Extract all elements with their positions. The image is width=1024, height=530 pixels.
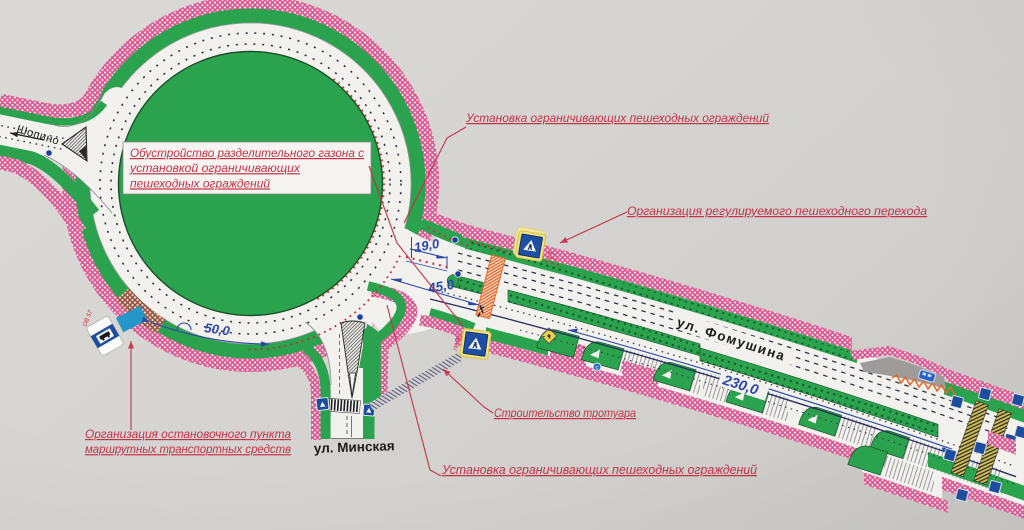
svg-text:Организация остановочного пунк: Организация остановочного пункта xyxy=(85,427,291,441)
svg-text:Установка ограничивающих пешех: Установка ограничивающих пешеходных огра… xyxy=(441,463,757,477)
svg-text:c: c xyxy=(596,366,599,372)
svg-text:маршрутных транспортных средст: маршрутных транспортных средств xyxy=(85,442,291,456)
svg-text:ул. Минская: ул. Минская xyxy=(314,438,395,456)
svg-text:установкой ограничивающих: установкой ограничивающих xyxy=(129,161,301,175)
svg-text:Организация регулируемого пеше: Организация регулируемого пешеходного пе… xyxy=(627,204,927,218)
svg-text:Строительство тротуара: Строительство тротуара xyxy=(494,406,636,420)
svg-text:пешеходных ограждений: пешеходных ограждений xyxy=(130,176,270,190)
svg-text:Установка ограничивающих пешех: Установка ограничивающих пешеходных огра… xyxy=(465,111,769,125)
svg-text:Обустройство разделительного г: Обустройство разделительного газона с xyxy=(130,146,364,160)
